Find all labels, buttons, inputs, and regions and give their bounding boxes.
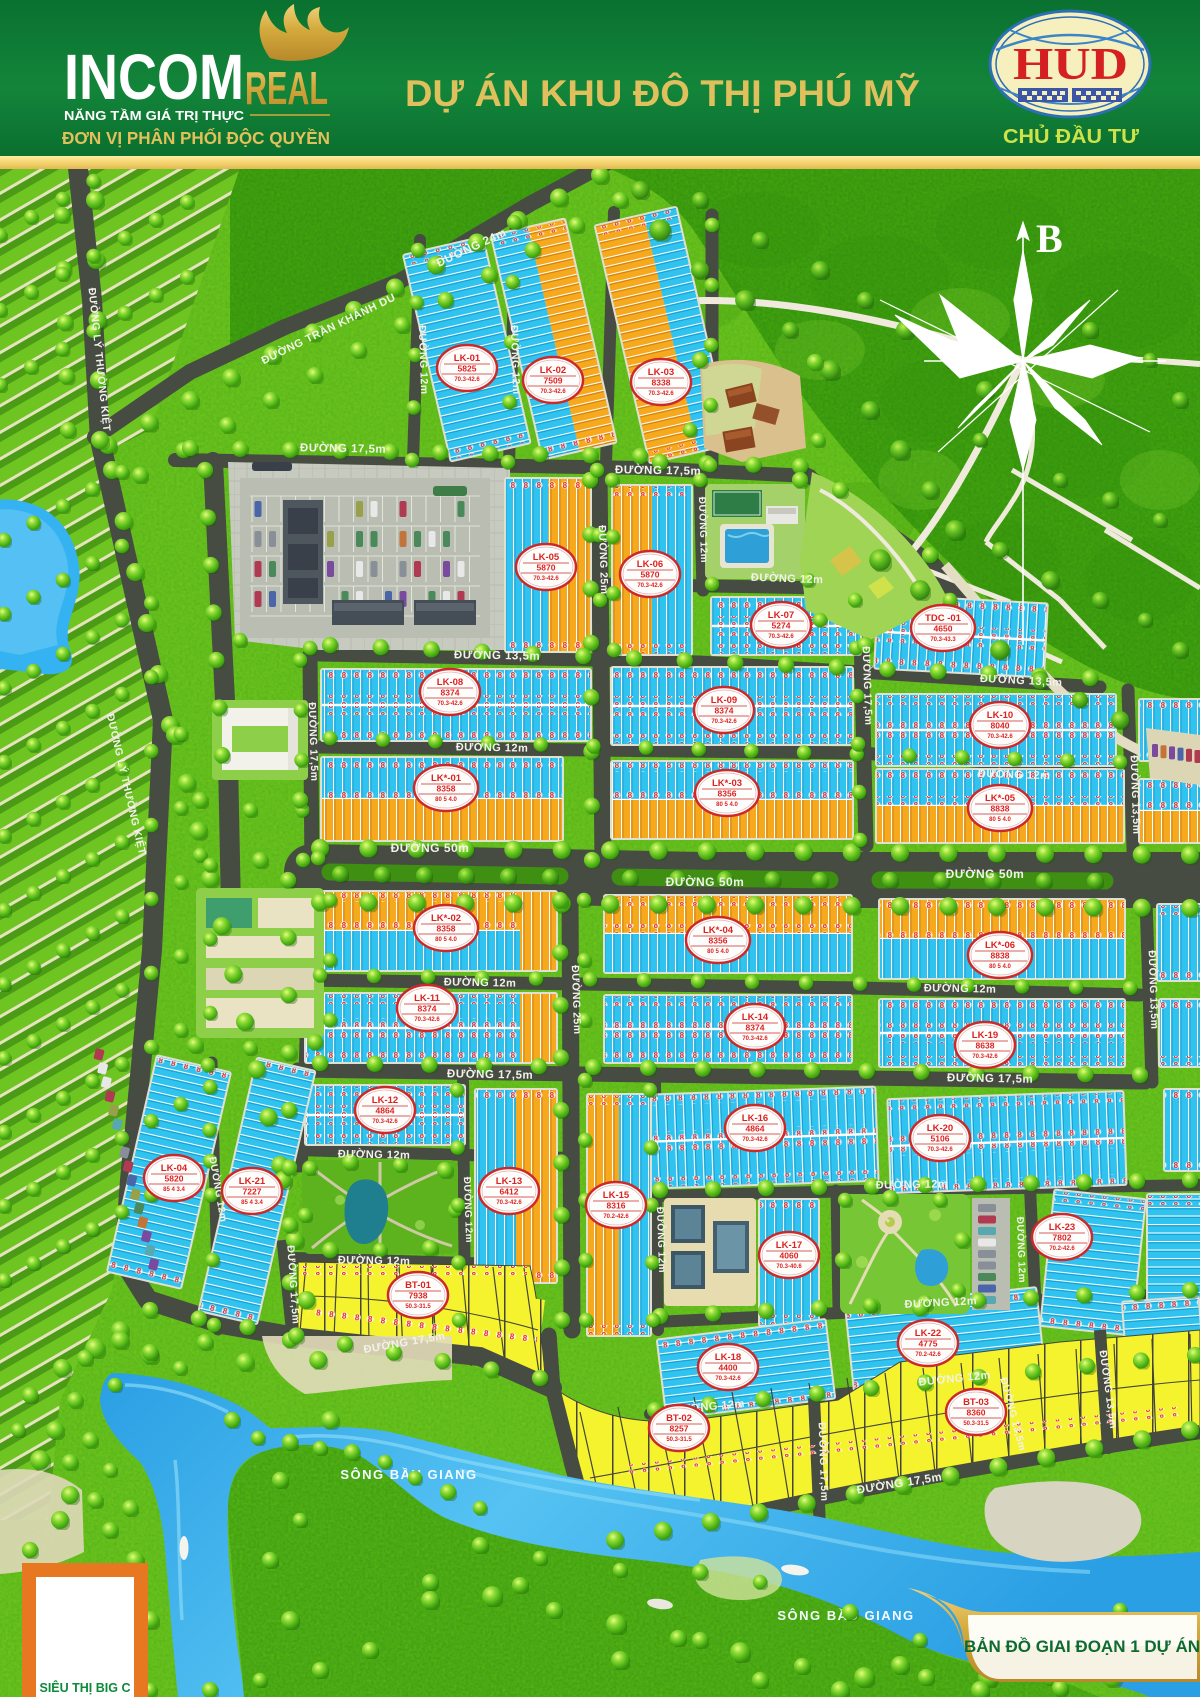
- svg-text:B: B: [1036, 216, 1063, 261]
- svg-text:70.3-42.6: 70.3-42.6: [927, 1147, 953, 1153]
- svg-text:70.3-42.6: 70.3-42.6: [533, 576, 559, 582]
- svg-text:8257: 8257: [670, 1424, 689, 1434]
- svg-text:LK-18: LK-18: [715, 1352, 741, 1363]
- svg-text:70.3-42.6: 70.3-42.6: [414, 1017, 440, 1023]
- svg-text:8316: 8316: [607, 1201, 626, 1211]
- svg-text:ĐƯỜNG 17,5m: ĐƯỜNG 17,5m: [816, 1422, 832, 1502]
- svg-text:ĐƯỜNG 17,5m: ĐƯỜNG 17,5m: [947, 1071, 1033, 1086]
- svg-text:85 4 3.4: 85 4 3.4: [241, 1200, 263, 1206]
- svg-text:70.3-42.6: 70.3-42.6: [496, 1200, 522, 1206]
- svg-text:80 5 4.0: 80 5 4.0: [707, 949, 729, 955]
- svg-text:ĐƯỜNG 17,5m: ĐƯỜNG 17,5m: [447, 1067, 533, 1082]
- svg-text:LK*-02: LK*-02: [431, 913, 461, 924]
- svg-text:ĐƯỜNG 13,5m: ĐƯỜNG 13,5m: [1128, 755, 1144, 835]
- svg-text:80 5 4.0: 80 5 4.0: [989, 817, 1011, 823]
- svg-text:8360: 8360: [967, 1408, 986, 1418]
- svg-text:ĐƯỜNG 12m: ĐƯỜNG 12m: [876, 1177, 949, 1191]
- svg-text:LK-20: LK-20: [927, 1123, 953, 1134]
- svg-text:ĐƯỜNG 17,5m: ĐƯỜNG 17,5m: [300, 441, 386, 456]
- svg-text:80 5 4.0: 80 5 4.0: [716, 802, 738, 808]
- svg-text:70.3-42.6: 70.3-42.6: [437, 701, 463, 707]
- svg-text:LK-12: LK-12: [372, 1095, 398, 1106]
- svg-text:BT-03: BT-03: [963, 1397, 989, 1408]
- svg-text:50.3-31.5: 50.3-31.5: [666, 1437, 692, 1443]
- svg-text:LK-15: LK-15: [603, 1190, 630, 1201]
- svg-text:LK-01: LK-01: [454, 353, 481, 364]
- svg-text:ĐƯỜNG 17,5m: ĐƯỜNG 17,5m: [860, 646, 876, 726]
- svg-text:ĐƯỜNG 12m: ĐƯỜNG 12m: [338, 1147, 411, 1161]
- svg-text:LK*-05: LK*-05: [985, 793, 1016, 804]
- svg-text:70.3-42.6: 70.3-42.6: [540, 389, 566, 395]
- svg-text:70.3-42.6: 70.3-42.6: [454, 377, 480, 383]
- svg-text:ĐƯỜNG 17,5m: ĐƯỜNG 17,5m: [306, 702, 322, 782]
- svg-text:8838: 8838: [991, 951, 1010, 961]
- svg-text:ĐƯỜNG 12m: ĐƯỜNG 12m: [338, 1253, 411, 1267]
- svg-text:LK-16: LK-16: [742, 1113, 768, 1124]
- svg-text:70.3-42.6: 70.3-42.6: [768, 634, 794, 640]
- svg-text:ĐƯỜNG 50m: ĐƯỜNG 50m: [391, 840, 470, 855]
- svg-text:LK-19: LK-19: [972, 1030, 998, 1041]
- svg-text:ĐƯỜNG 12m: ĐƯỜNG 12m: [978, 767, 1051, 783]
- svg-text:TDC -01: TDC -01: [925, 613, 962, 624]
- svg-text:70.3-42.6: 70.3-42.6: [372, 1119, 398, 1125]
- svg-text:6412: 6412: [500, 1187, 519, 1197]
- svg-text:5825: 5825: [458, 364, 477, 374]
- svg-text:HUD: HUD: [1013, 38, 1128, 89]
- svg-text:70.3-42.6: 70.3-42.6: [711, 719, 737, 725]
- svg-text:5820: 5820: [165, 1174, 184, 1184]
- svg-text:BT-01: BT-01: [405, 1280, 432, 1291]
- svg-text:8040: 8040: [991, 721, 1010, 731]
- svg-text:ĐƯỜNG 12m: ĐƯỜNG 12m: [508, 325, 523, 395]
- svg-text:ĐƯỜNG 13,5m: ĐƯỜNG 13,5m: [454, 648, 540, 663]
- svg-text:8374: 8374: [746, 1023, 765, 1033]
- svg-text:LK-17: LK-17: [776, 1240, 802, 1251]
- svg-text:70.3-42.6: 70.3-42.6: [648, 391, 674, 397]
- svg-text:SIÊU THỊ BIG C: SIÊU THỊ BIG C: [40, 1680, 131, 1695]
- svg-text:ĐƯỜNG 12m: ĐƯỜNG 12m: [924, 981, 997, 995]
- svg-text:ĐƯỜNG 50m: ĐƯỜNG 50m: [666, 874, 745, 889]
- svg-text:8358: 8358: [437, 924, 456, 934]
- svg-text:8374: 8374: [715, 706, 734, 716]
- svg-text:7227: 7227: [243, 1187, 262, 1197]
- svg-text:ĐƯỜNG 13,5m: ĐƯỜNG 13,5m: [1146, 950, 1162, 1030]
- svg-text:ĐƯỜNG 25m: ĐƯỜNG 25m: [569, 965, 584, 1035]
- svg-text:LK-04: LK-04: [161, 1163, 188, 1174]
- svg-text:LK*-01: LK*-01: [431, 773, 462, 784]
- svg-text:LK-14: LK-14: [742, 1012, 769, 1023]
- svg-text:70.3-40.6: 70.3-40.6: [776, 1264, 802, 1270]
- svg-text:80 5 4.0: 80 5 4.0: [989, 964, 1011, 970]
- svg-text:LK-23: LK-23: [1049, 1222, 1075, 1233]
- svg-text:7938: 7938: [409, 1291, 428, 1301]
- svg-text:LK-21: LK-21: [239, 1176, 266, 1187]
- svg-text:ĐƯỜNG 50m: ĐƯỜNG 50m: [946, 866, 1025, 881]
- svg-text:70.3-42.6: 70.3-42.6: [742, 1137, 768, 1143]
- svg-text:7509: 7509: [544, 376, 563, 386]
- svg-text:DỰ ÁN KHU ĐÔ THỊ PHÚ MỸ: DỰ ÁN KHU ĐÔ THỊ PHÚ MỸ: [405, 72, 920, 114]
- svg-text:ĐƯỜNG 12m: ĐƯỜNG 12m: [456, 740, 529, 754]
- svg-text:ĐƯỜNG 12m: ĐƯỜNG 12m: [444, 975, 517, 989]
- svg-text:70.2-42.6: 70.2-42.6: [915, 1352, 941, 1358]
- svg-text:LK-07: LK-07: [768, 610, 794, 621]
- svg-text:50.3-31.5: 50.3-31.5: [405, 1304, 431, 1310]
- svg-text:80 5 4.0: 80 5 4.0: [435, 937, 457, 943]
- svg-text:70.3-42.6: 70.3-42.6: [987, 734, 1013, 740]
- svg-text:50.3-31.5: 50.3-31.5: [963, 1421, 989, 1427]
- svg-text:CHỦ ĐẦU TƯ: CHỦ ĐẦU TƯ: [1003, 124, 1139, 148]
- svg-text:LK-09: LK-09: [711, 695, 737, 706]
- svg-text:ĐƯỜNG 25m: ĐƯỜNG 25m: [596, 525, 611, 595]
- svg-text:8356: 8356: [709, 936, 728, 946]
- svg-text:4864: 4864: [746, 1124, 765, 1134]
- svg-text:LK*-03: LK*-03: [712, 778, 742, 789]
- svg-text:LK-13: LK-13: [496, 1176, 522, 1187]
- svg-text:REAL: REAL: [245, 62, 328, 114]
- svg-text:BẢN ĐỒ GIAI ĐOẠN 1 DỰ ÁN: BẢN ĐỒ GIAI ĐOẠN 1 DỰ ÁN: [964, 1637, 1200, 1656]
- svg-text:LK-03: LK-03: [648, 367, 674, 378]
- svg-text:LK*-06: LK*-06: [985, 940, 1015, 951]
- svg-text:INCOM: INCOM: [64, 41, 244, 113]
- svg-text:4400: 4400: [719, 1363, 738, 1373]
- svg-text:ĐƠN VỊ PHÂN PHỐI ĐỘC QUYỀN: ĐƠN VỊ PHÂN PHỐI ĐỘC QUYỀN: [62, 127, 330, 148]
- svg-text:4864: 4864: [376, 1106, 395, 1116]
- svg-text:70.3-42.6: 70.3-42.6: [715, 1376, 741, 1382]
- svg-text:LK-02: LK-02: [540, 365, 566, 376]
- svg-text:ĐƯỜNG 12m: ĐƯỜNG 12m: [751, 571, 824, 587]
- svg-text:ĐƯỜNG 17,5m: ĐƯỜNG 17,5m: [615, 463, 701, 478]
- svg-text:8374: 8374: [418, 1004, 437, 1014]
- svg-text:70.3-42.6: 70.3-42.6: [972, 1054, 998, 1060]
- svg-text:8356: 8356: [718, 789, 737, 799]
- svg-text:LK-08: LK-08: [437, 677, 463, 688]
- svg-text:70.2-42.6: 70.2-42.6: [603, 1214, 629, 1220]
- svg-text:8838: 8838: [991, 804, 1010, 814]
- svg-text:70.3-43.3: 70.3-43.3: [930, 637, 956, 643]
- svg-text:4060: 4060: [780, 1251, 799, 1261]
- svg-text:70.2-42.6: 70.2-42.6: [1049, 1246, 1075, 1252]
- svg-text:5274: 5274: [772, 621, 791, 631]
- svg-text:4775: 4775: [919, 1339, 938, 1349]
- svg-text:NĂNG TẦM GIÁ TRỊ THỰC: NĂNG TẦM GIÁ TRỊ THỰC: [64, 108, 244, 123]
- svg-text:LK-22: LK-22: [915, 1328, 941, 1339]
- svg-text:LK*-04: LK*-04: [703, 925, 734, 936]
- svg-text:80 5 4.0: 80 5 4.0: [435, 797, 457, 803]
- svg-text:BT-02: BT-02: [666, 1413, 692, 1424]
- svg-text:70.3-42.6: 70.3-42.6: [742, 1036, 768, 1042]
- svg-text:7802: 7802: [1053, 1233, 1072, 1243]
- svg-text:LK-10: LK-10: [987, 710, 1013, 721]
- svg-text:4650: 4650: [934, 624, 953, 634]
- svg-text:8638: 8638: [976, 1041, 995, 1051]
- svg-text:LK-06: LK-06: [637, 559, 663, 570]
- svg-text:5870: 5870: [641, 570, 660, 580]
- svg-text:8338: 8338: [652, 378, 671, 388]
- svg-text:70.3-42.6: 70.3-42.6: [637, 583, 663, 589]
- svg-text:LK-05: LK-05: [533, 552, 560, 563]
- svg-text:5106: 5106: [931, 1134, 950, 1144]
- svg-text:8374: 8374: [441, 688, 460, 698]
- svg-text:LK-11: LK-11: [414, 993, 441, 1004]
- svg-text:8358: 8358: [437, 784, 456, 794]
- svg-text:ĐƯỜNG 12m: ĐƯỜNG 12m: [416, 325, 431, 395]
- svg-text:85 4 3.4: 85 4 3.4: [163, 1187, 185, 1193]
- svg-text:5870: 5870: [537, 563, 556, 573]
